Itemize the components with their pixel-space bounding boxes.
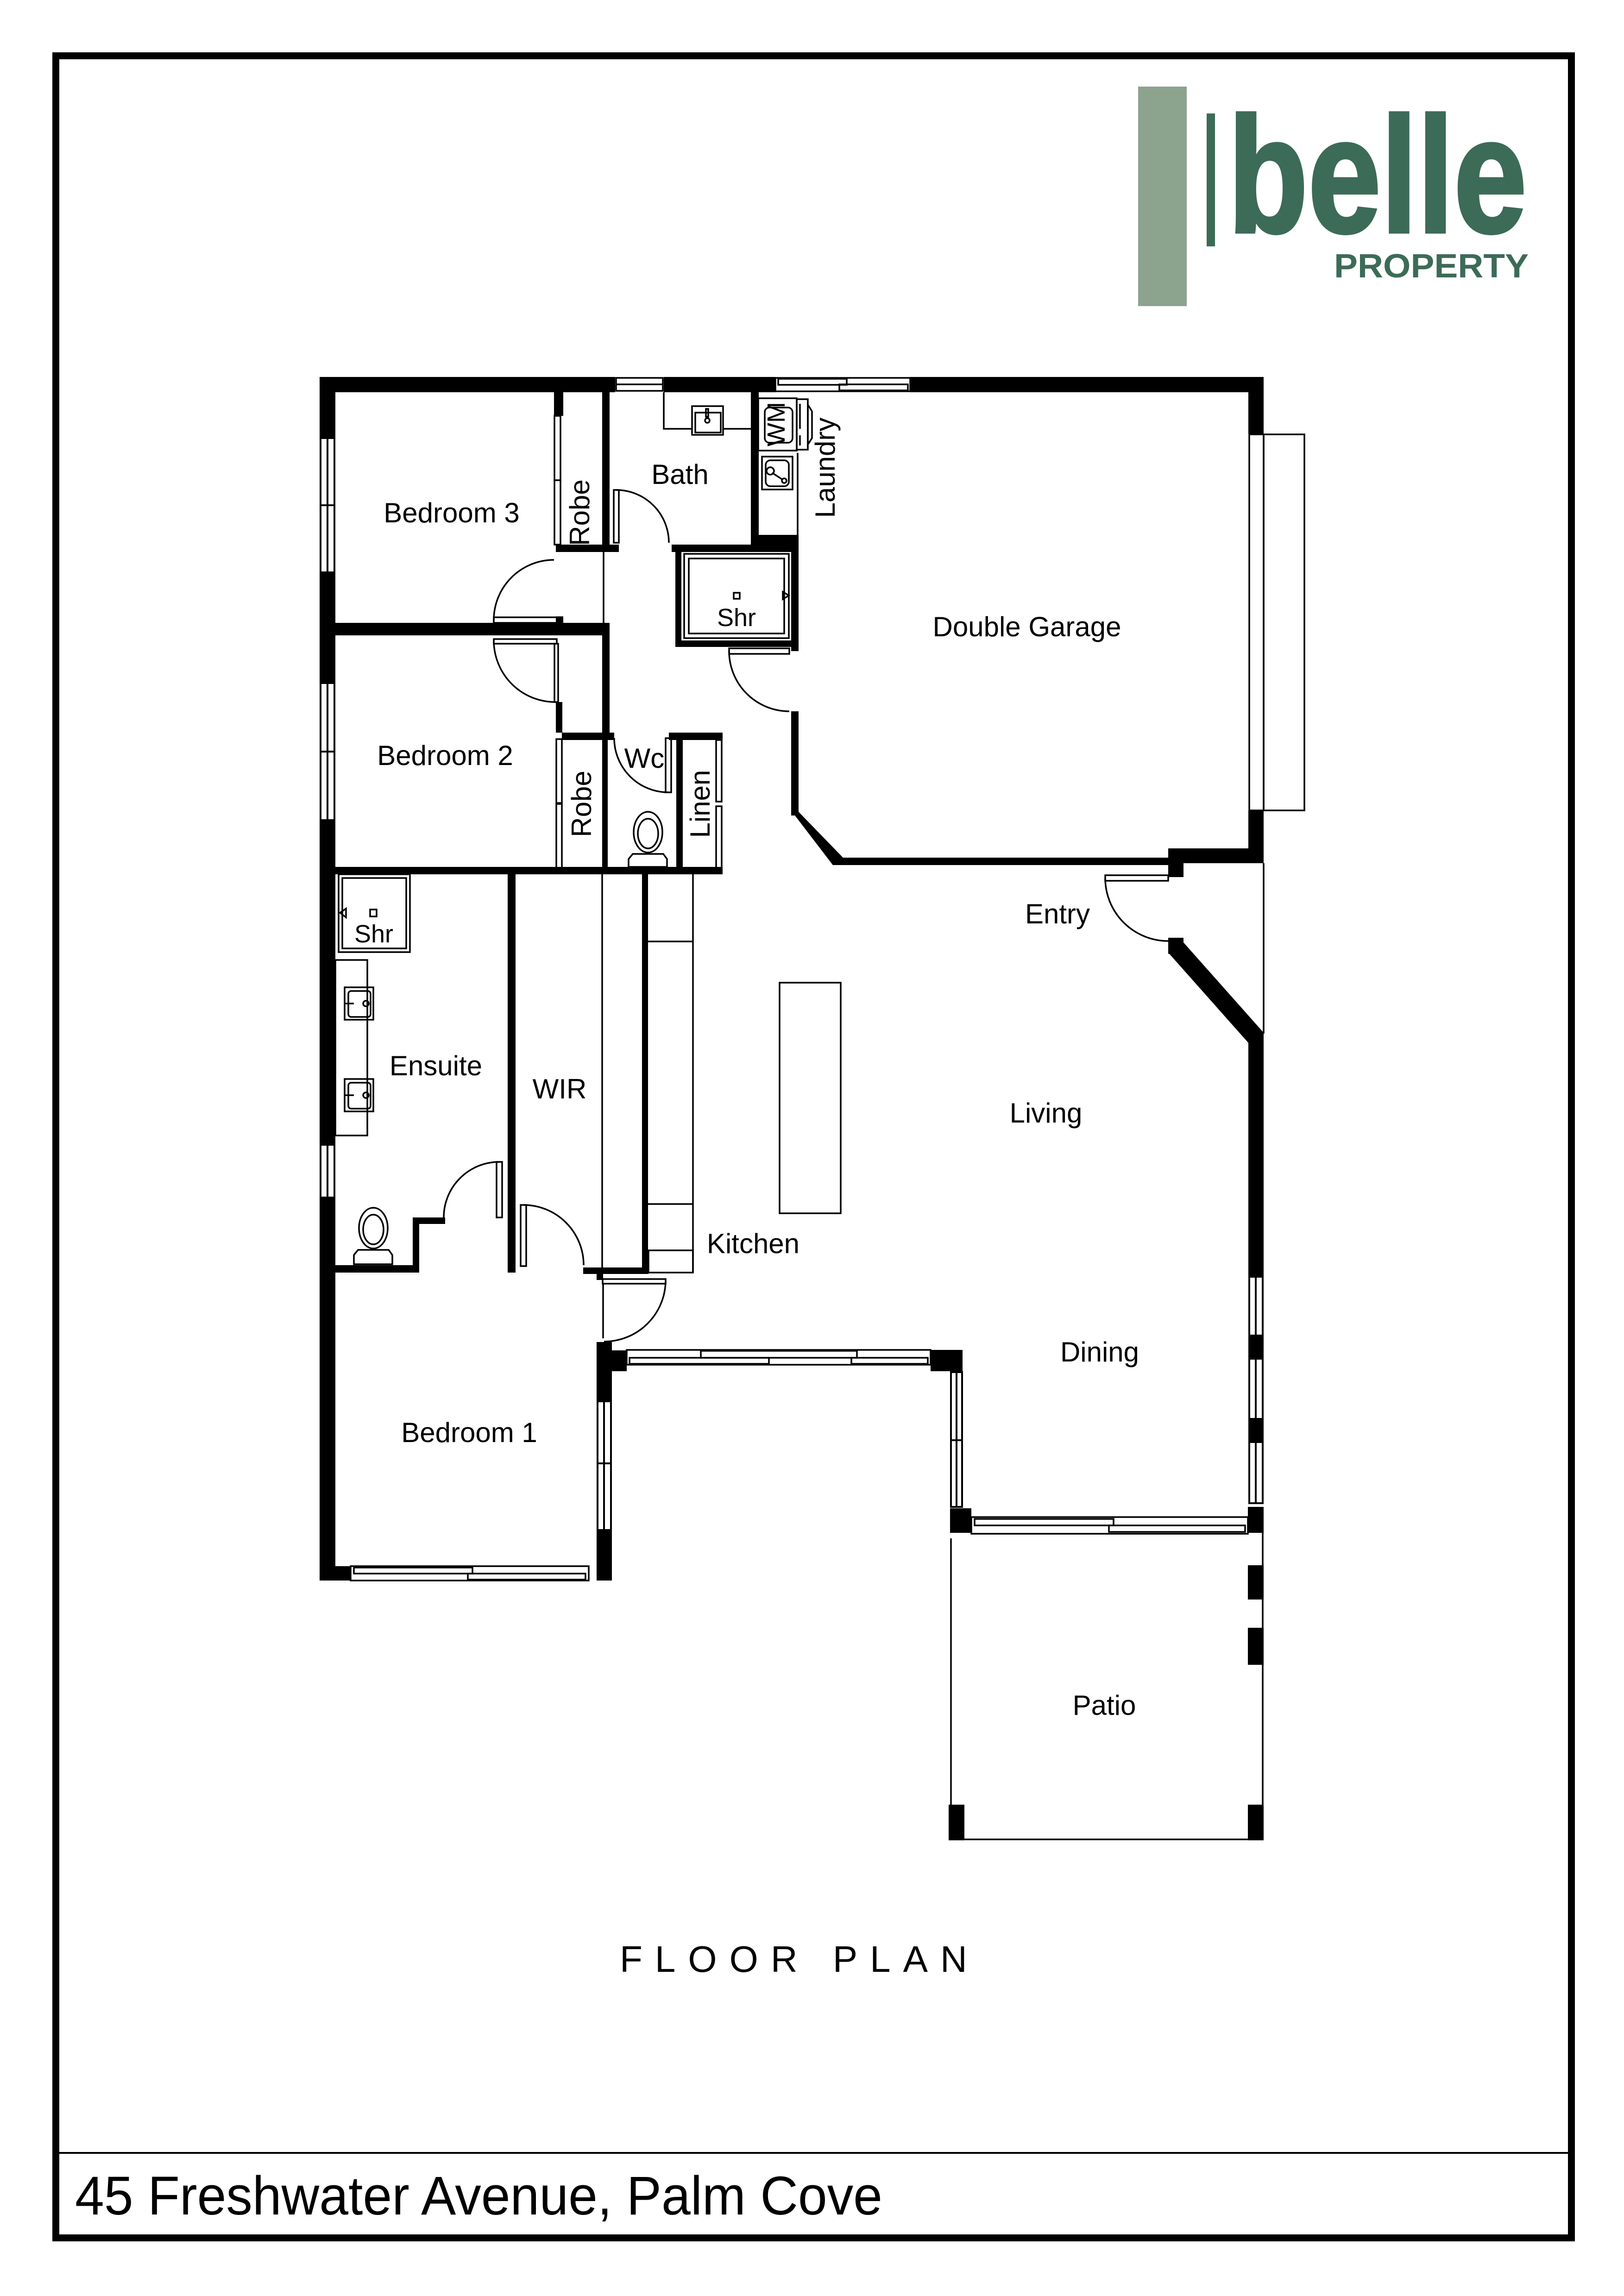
svg-text:belle: belle	[1228, 84, 1527, 267]
svg-text:Entry: Entry	[1025, 898, 1090, 929]
svg-text:Robe: Robe	[566, 771, 597, 837]
svg-text:Patio: Patio	[1073, 1690, 1136, 1721]
svg-text:WM: WM	[762, 402, 790, 446]
svg-text:Dining: Dining	[1060, 1336, 1139, 1368]
svg-text:Shr: Shr	[354, 920, 393, 948]
svg-text:Living: Living	[1010, 1098, 1083, 1129]
svg-text:Shr: Shr	[717, 604, 756, 632]
svg-text:FLOOR PLAN: FLOOR PLAN	[620, 1938, 980, 1980]
svg-text:Robe: Robe	[564, 479, 595, 546]
svg-text:Wc: Wc	[624, 743, 665, 774]
svg-text:Laundry: Laundry	[810, 418, 841, 518]
svg-text:Bedroom 1: Bedroom 1	[401, 1417, 537, 1448]
svg-text:Ensuite: Ensuite	[390, 1050, 482, 1081]
svg-text:45 Freshwater Avenue, Palm Cov: 45 Freshwater Avenue, Palm Cove	[75, 2165, 882, 2227]
svg-text:Linen: Linen	[685, 770, 716, 838]
svg-text:Kitchen: Kitchen	[707, 1228, 799, 1259]
svg-text:Double Garage: Double Garage	[933, 611, 1121, 642]
svg-text:Bath: Bath	[651, 459, 708, 490]
svg-text:Bedroom 2: Bedroom 2	[377, 740, 513, 771]
svg-text:PROPERTY: PROPERTY	[1334, 248, 1529, 285]
svg-text:Bedroom 3: Bedroom 3	[384, 497, 520, 528]
svg-text:WIR: WIR	[533, 1073, 587, 1104]
